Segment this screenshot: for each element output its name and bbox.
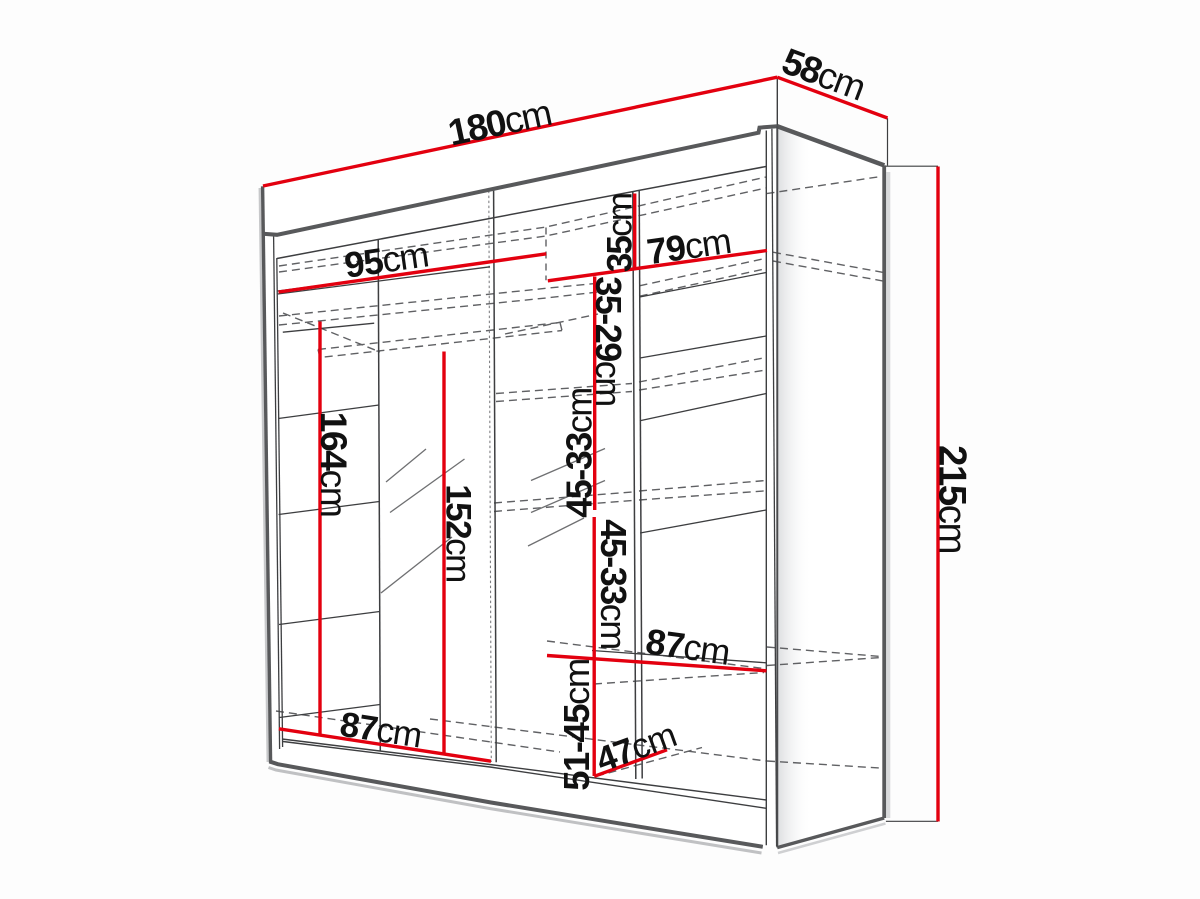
svg-text:35-29cm: 35-29cm — [588, 276, 629, 406]
svg-text:45-33cm: 45-33cm — [593, 519, 634, 649]
svg-text:35cm: 35cm — [601, 194, 640, 273]
svg-text:215cm: 215cm — [931, 445, 974, 553]
svg-text:45-33cm: 45-33cm — [559, 388, 600, 518]
svg-text:152cm: 152cm — [439, 484, 478, 582]
svg-text:164cm: 164cm — [313, 411, 355, 516]
svg-text:51-45cm: 51-45cm — [556, 659, 597, 791]
